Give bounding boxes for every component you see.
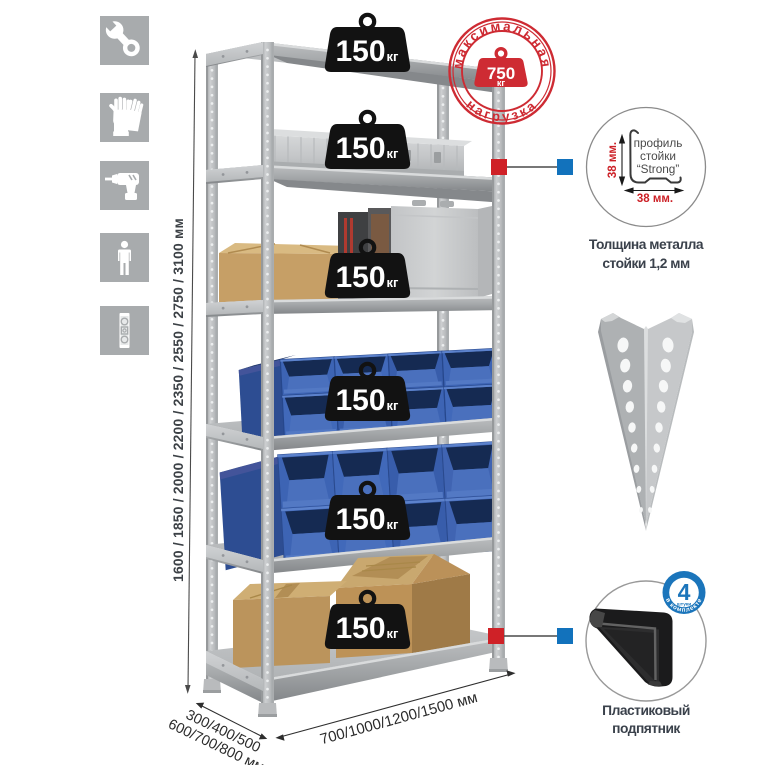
svg-text:38 мм.: 38 мм. — [637, 193, 673, 205]
svg-text:38 мм.: 38 мм. — [607, 142, 619, 178]
svg-text:стойки: стойки — [640, 149, 676, 163]
svg-text:стойки 1,2 мм: стойки 1,2 мм — [602, 256, 690, 271]
svg-text:150: 150 — [335, 35, 385, 68]
svg-text:кг: кг — [387, 626, 400, 641]
svg-text:кг: кг — [387, 517, 400, 532]
svg-text:150: 150 — [335, 612, 385, 645]
svg-text:150: 150 — [335, 503, 385, 536]
svg-text:подпятник: подпятник — [612, 721, 680, 736]
svg-text:“Strong”: “Strong” — [637, 162, 680, 176]
svg-text:кг: кг — [497, 78, 506, 88]
svg-text:кг: кг — [387, 49, 400, 64]
svg-text:профиль: профиль — [634, 136, 683, 150]
svg-text:Пластиковый: Пластиковый — [602, 703, 690, 718]
svg-text:150: 150 — [335, 384, 385, 417]
svg-text:700/1000/1200/1500 мм: 700/1000/1200/1500 мм — [318, 689, 479, 748]
svg-text:4: 4 — [678, 579, 691, 605]
svg-text:кг: кг — [387, 398, 400, 413]
svg-text:150: 150 — [335, 132, 385, 165]
svg-text:кг: кг — [387, 146, 400, 161]
svg-text:1600 / 1850 / 2000 / 2200 / 23: 1600 / 1850 / 2000 / 2200 / 2350 / 2550 … — [170, 218, 186, 582]
svg-text:кг: кг — [387, 275, 400, 290]
svg-text:Толщина металла: Толщина металла — [589, 237, 704, 252]
svg-text:150: 150 — [335, 261, 385, 294]
